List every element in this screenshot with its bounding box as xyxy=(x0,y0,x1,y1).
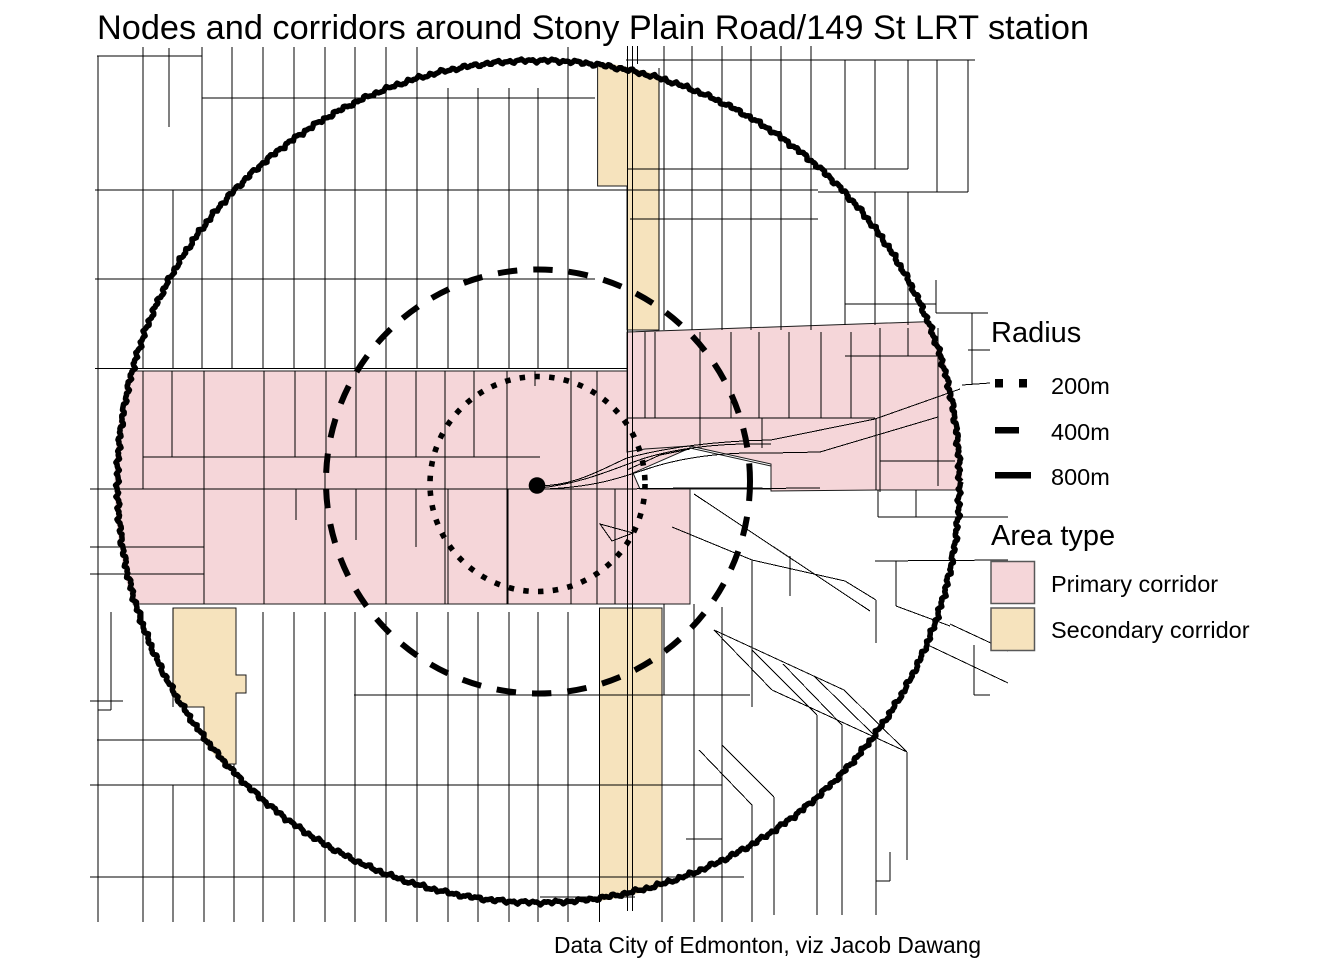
svg-text:Radius: Radius xyxy=(991,317,1081,349)
svg-text:200m: 200m xyxy=(1051,373,1110,399)
svg-text:Secondary corridor: Secondary corridor xyxy=(1051,617,1250,643)
svg-text:Nodes and corridors around Sto: Nodes and corridors around Stony Plain R… xyxy=(97,9,1089,47)
svg-text:Area type: Area type xyxy=(991,520,1115,552)
svg-text:800m: 800m xyxy=(1051,464,1110,490)
svg-text:Primary corridor: Primary corridor xyxy=(1051,571,1218,597)
svg-text:400m: 400m xyxy=(1051,419,1110,445)
svg-text:Data City of Edmonton, viz Jac: Data City of Edmonton, viz Jacob Dawang xyxy=(554,932,981,958)
